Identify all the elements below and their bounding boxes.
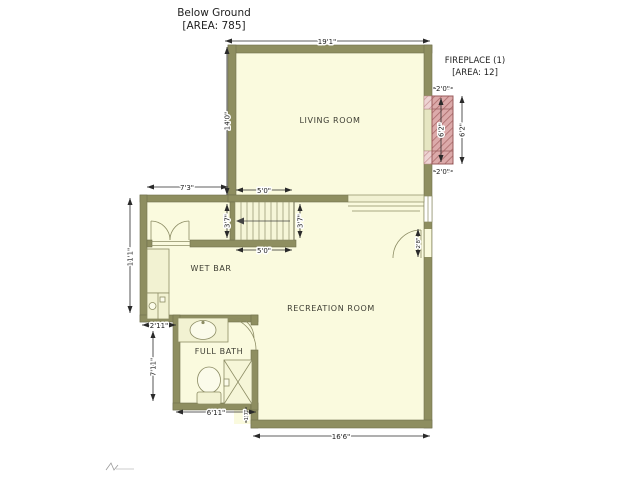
toilet-bowl-icon [198,367,221,393]
wet-bar-faucet-icon [160,297,165,302]
wall-stairs-top [228,195,348,202]
dim-fireplace-outer-height: 6'2" [459,123,467,137]
dim-step-height: 1'7" [244,409,250,420]
dim-stairs-height-right: 3'7" [297,214,305,228]
dim-upper-left-width: 7'3" [180,184,194,192]
firebox-opening-bottom [424,151,432,164]
dim-fireplace-bottom-width: 2'0" [436,168,450,176]
door-opening-right-wall [425,229,432,257]
dim-stairs-height-left: 3'7" [224,214,232,228]
dim-bath-left-height: 7'11" [150,358,158,377]
room-label-living: LIVING ROOM [299,116,360,125]
sink-faucet-icon [201,321,204,324]
floor-plan-drawing: 19'1" 14'0" 7'3" 5'0" 5'0" 3'7" 3'7" 11'… [0,0,640,480]
wet-bar-sink-icon [149,303,156,310]
pass-through-sill [348,195,424,202]
dim-stairs-width-top: 5'0" [257,187,271,195]
wall-closet-stub [147,240,152,247]
wet-bar-fixtures [147,249,169,319]
dim-bath-bottom-width: 6'11" [207,409,226,417]
dim-top-width: 19'1" [318,38,337,46]
fireplace-label-line2: [AREA: 12] [452,68,498,78]
dim-bottom-width: 16'6" [332,433,351,441]
dim-side-door-width: 2'8" [416,237,422,248]
wall-top [228,45,432,53]
firebox-opening-top [424,96,432,109]
floor-plan-canvas: 19'1" 14'0" 7'3" 5'0" 5'0" 3'7" 3'7" 11'… [0,0,640,480]
room-label-recreation: RECREATION ROOM [287,304,375,313]
fireplace-back-wall [424,109,432,151]
wall-bath-right-upper [251,315,258,325]
room-label-wet-bar: WET BAR [190,264,231,273]
dim-stairs-width-bottom: 5'0" [257,247,271,255]
toilet-tank [197,392,221,404]
wall-wing-top [140,195,236,202]
dim-fireplace-top-width: 2'0" [436,85,450,93]
shower-valve-icon [224,379,229,386]
plan-title-line2: [AREA: 785] [182,20,245,32]
dim-wetbar-left-height: 11'1" [127,248,135,267]
fireplace-label-line1: FIREPLACE (1) [445,56,505,66]
dim-living-left-height: 14'0" [224,112,232,131]
wet-bar-counter [147,249,169,293]
staircase [235,202,294,240]
wall-bottom [251,420,432,428]
plan-title-line1: Below Ground [177,7,251,19]
watermark-logo [106,463,134,470]
room-label-full-bath: FULL BATH [195,347,244,356]
wall-far-left [140,195,147,322]
living-room-floor [232,49,428,202]
dim-fireplace-inner-height: 6'2" [438,123,446,137]
wall-stairs-bottom [190,240,296,247]
dim-bath-offset-width: 2'11" [150,322,169,330]
